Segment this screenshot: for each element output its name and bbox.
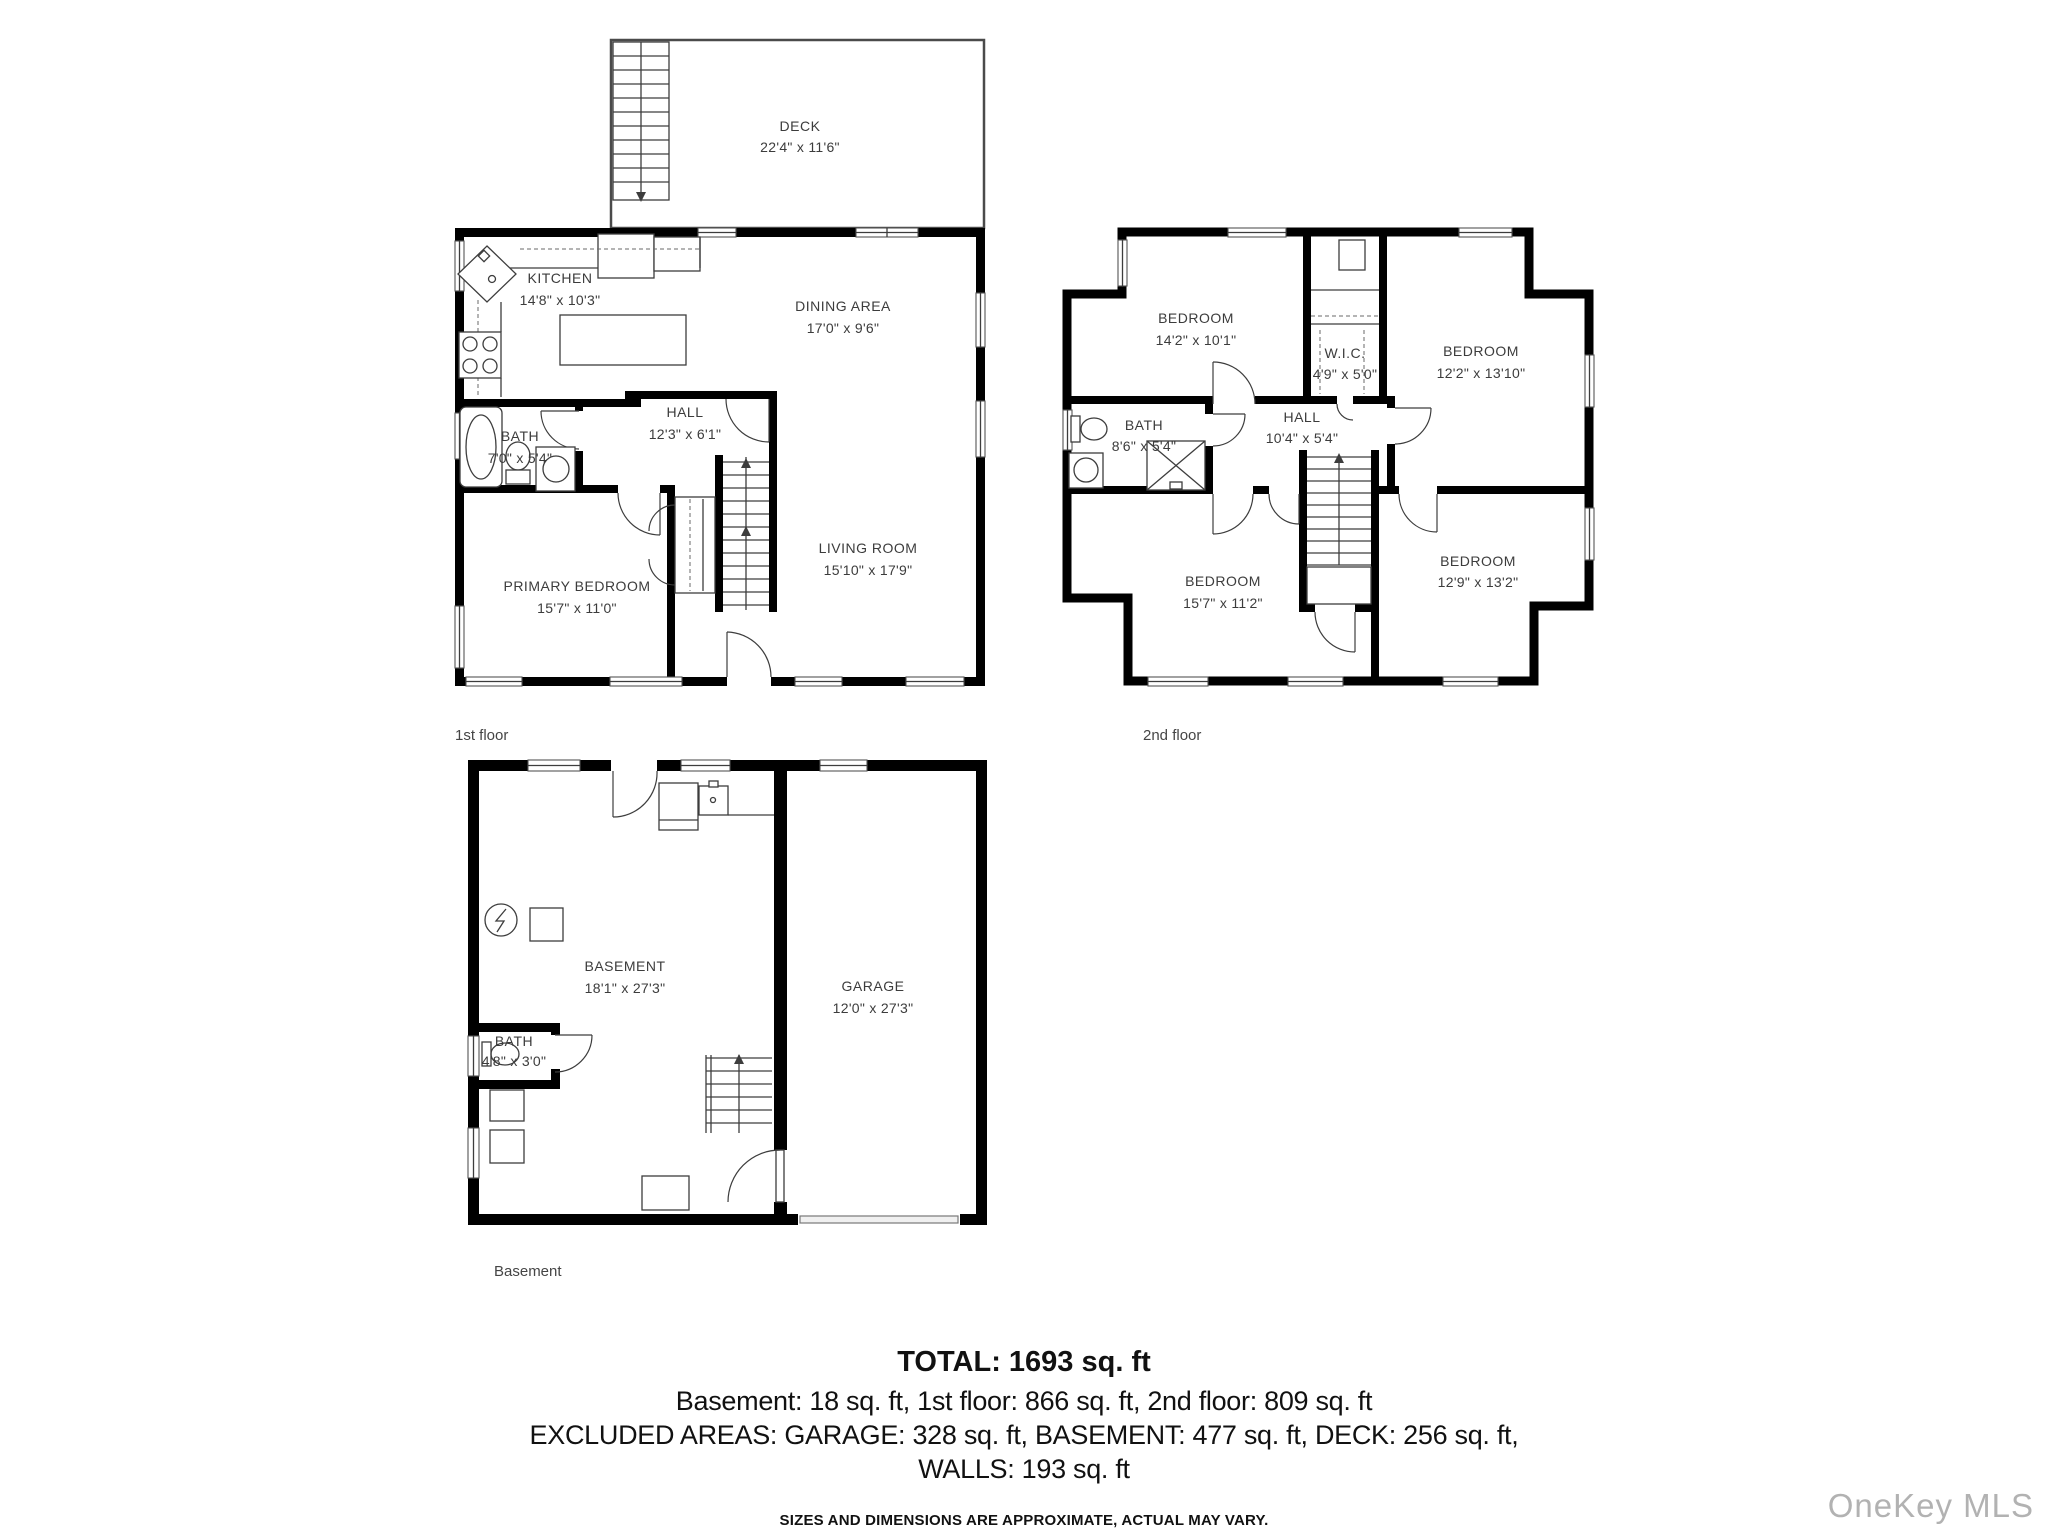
living-room-dims: 15'10" x 17'9" bbox=[824, 562, 913, 578]
living-room-label: LIVING ROOM bbox=[819, 540, 918, 556]
first-floor-bath-fixtures bbox=[460, 407, 575, 491]
floorplan-page: DECK 22'4" x 11'6" KITCHEN 14'8" x 10'3"… bbox=[0, 0, 2048, 1536]
second-floor-stairs bbox=[1307, 453, 1371, 604]
floorplans-svg: DECK 22'4" x 11'6" KITCHEN 14'8" x 10'3"… bbox=[0, 0, 2048, 1536]
deck-stairs bbox=[613, 42, 669, 202]
first-floor-doors bbox=[541, 399, 771, 686]
hall-dims: 12'3" x 6'1" bbox=[649, 426, 722, 442]
basement-walls bbox=[468, 760, 987, 1225]
second-floor-caption: 2nd floor bbox=[1143, 727, 1201, 744]
tank-unit-2 bbox=[490, 1130, 524, 1163]
primary-closet bbox=[649, 497, 715, 593]
bath3-dims: 4'8" x 3'0" bbox=[482, 1053, 547, 1069]
bedroom-tl-label: BEDROOM bbox=[1158, 310, 1234, 326]
disclaimer: SIZES AND DIMENSIONS ARE APPROXIMATE, AC… bbox=[0, 1512, 2048, 1529]
onekey-mls-watermark: OneKey MLS bbox=[1828, 1487, 2034, 1525]
bedroom-bl-dims: 15'7" x 11'2" bbox=[1183, 595, 1263, 611]
second-floor-plan: BEDROOM 14'2" x 10'1" W.I.C. 4'9" x 5'0"… bbox=[1063, 228, 1594, 744]
bedroom-br-label: BEDROOM bbox=[1440, 553, 1516, 569]
hall2-label: HALL bbox=[1283, 409, 1320, 425]
total-area: TOTAL: 1693 sq. ft bbox=[0, 1346, 2048, 1379]
bedroom-bl-label: BEDROOM bbox=[1185, 573, 1261, 589]
kitchen-label: KITCHEN bbox=[528, 270, 593, 286]
utility-unit bbox=[530, 908, 563, 941]
wic-dims: 4'9" x 5'0" bbox=[1313, 366, 1378, 382]
bedroom-tr-label: BEDROOM bbox=[1443, 343, 1519, 359]
dining-dims: 17'0" x 9'6" bbox=[807, 320, 880, 336]
deck-label: DECK bbox=[780, 118, 821, 134]
bath1-label: BATH bbox=[501, 428, 539, 444]
primary-bedroom-dims: 15'7" x 11'0" bbox=[537, 600, 617, 616]
deck-outline bbox=[611, 40, 984, 228]
garage-dims: 12'0" x 27'3" bbox=[833, 1000, 914, 1016]
kitchen-dims: 14'8" x 10'3" bbox=[520, 292, 601, 308]
first-floor-caption: 1st floor bbox=[455, 727, 508, 744]
laundry-area bbox=[659, 781, 774, 830]
kitchen-island bbox=[560, 315, 686, 365]
floor-areas: Basement: 18 sq. ft, 1st floor: 866 sq. … bbox=[0, 1386, 2048, 1417]
area-summary: TOTAL: 1693 sq. ft Basement: 18 sq. ft, … bbox=[0, 1346, 2048, 1529]
basement-dims: 18'1" x 27'3" bbox=[585, 980, 666, 996]
first-floor-labels: DECK 22'4" x 11'6" KITCHEN 14'8" x 10'3"… bbox=[455, 118, 917, 744]
electrical-panel-icon bbox=[485, 904, 517, 936]
walls-area: WALLS: 193 sq. ft bbox=[0, 1454, 2048, 1485]
garage-label: GARAGE bbox=[842, 978, 905, 994]
excluded-areas: EXCLUDED AREAS: GARAGE: 328 sq. ft, BASE… bbox=[0, 1420, 2048, 1451]
tank-unit-1 bbox=[490, 1090, 524, 1121]
basement-plan: BASEMENT 18'1" x 27'3" GARAGE 12'0" x 27… bbox=[468, 760, 987, 1280]
stove bbox=[459, 332, 501, 378]
basement-stairs bbox=[706, 1054, 772, 1133]
bedroom-tr-dims: 12'2" x 13'10" bbox=[1437, 365, 1526, 381]
kitchen-fixtures bbox=[458, 234, 700, 397]
garage-door bbox=[798, 1214, 960, 1225]
hall2-dims: 10'4" x 5'4" bbox=[1266, 430, 1339, 446]
bath1-dims: 7'0" x 5'4" bbox=[488, 450, 553, 466]
bath2-dims: 8'6" x 5'4" bbox=[1112, 438, 1177, 454]
bedroom-tl-dims: 14'2" x 10'1" bbox=[1156, 332, 1237, 348]
deck-dims: 22'4" x 11'6" bbox=[760, 139, 840, 155]
first-floor-stairs bbox=[723, 457, 769, 610]
bath3-label: BATH bbox=[495, 1033, 533, 1049]
corner-sink bbox=[458, 246, 516, 302]
primary-bedroom-label: PRIMARY BEDROOM bbox=[503, 578, 650, 594]
basement-label: BASEMENT bbox=[584, 958, 665, 974]
first-floor-plan: DECK 22'4" x 11'6" KITCHEN 14'8" x 10'3"… bbox=[455, 40, 985, 744]
basement-labels: BASEMENT 18'1" x 27'3" GARAGE 12'0" x 27… bbox=[482, 958, 914, 1280]
hall-label: HALL bbox=[666, 404, 703, 420]
second-floor-walls bbox=[1067, 228, 1593, 681]
dining-label: DINING AREA bbox=[795, 298, 891, 314]
table bbox=[642, 1176, 689, 1210]
basement-caption: Basement bbox=[494, 1263, 562, 1280]
bath2-label: BATH bbox=[1125, 417, 1163, 433]
wic-label: W.I.C. bbox=[1324, 345, 1365, 361]
bedroom-br-dims: 12'9" x 13'2" bbox=[1438, 574, 1519, 590]
